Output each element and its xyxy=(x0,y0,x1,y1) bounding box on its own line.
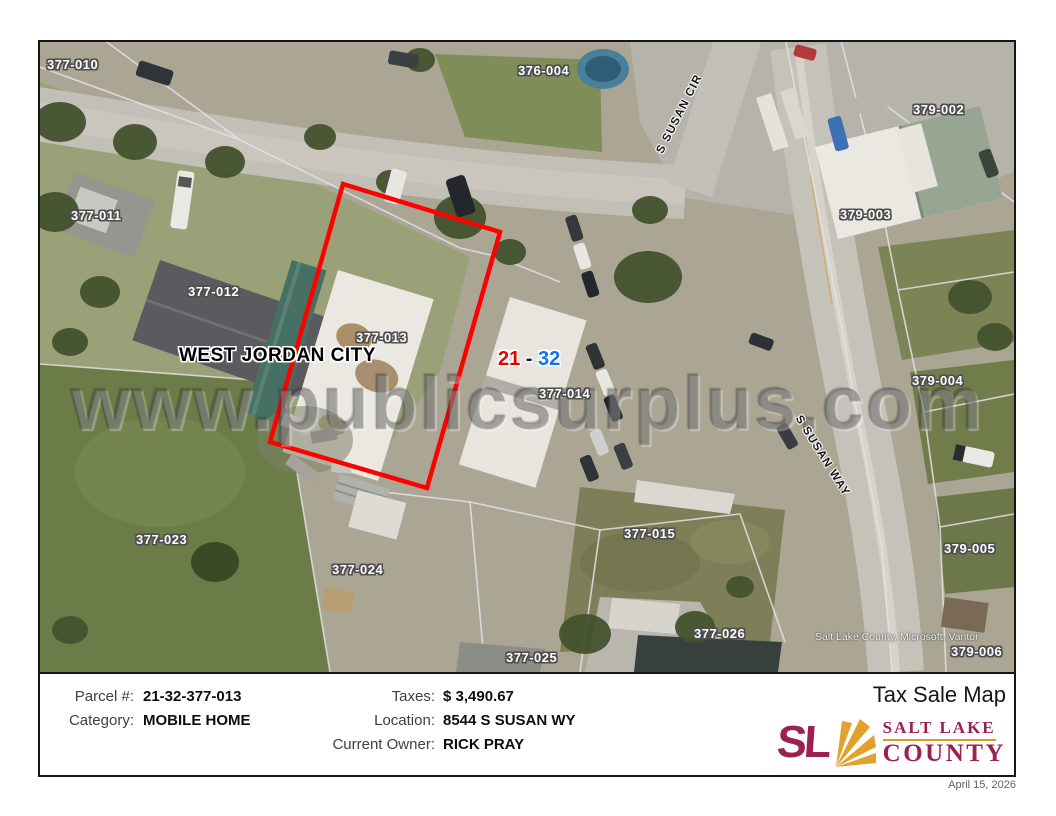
parcel-label-376-004: 376-004 xyxy=(518,63,569,78)
category-value: MOBILE HOME xyxy=(143,712,251,729)
map-frame: www.publicsurplus.com 377-010376-004379-… xyxy=(38,40,1016,777)
county-name: SALT LAKE COUNTY xyxy=(883,718,1006,767)
page-title: Tax Sale Map xyxy=(873,682,1006,708)
range-to: 32 xyxy=(538,348,560,370)
page: www.publicsurplus.com 377-010376-004379-… xyxy=(0,0,1056,816)
parcel-label-377-024: 377-024 xyxy=(332,562,383,577)
parcel-number-label: Parcel #: xyxy=(40,688,134,705)
location-label: Location: xyxy=(288,712,435,729)
parcel-label-379-006: 379-006 xyxy=(951,644,1002,659)
sl-logomark: SL xyxy=(776,722,830,763)
parcel-label-377-026: 377-026 xyxy=(694,626,745,641)
parcel-label-379-003: 379-003 xyxy=(840,207,891,222)
parcel-label-377-014: 377-014 xyxy=(539,386,590,401)
taxes-label: Taxes: xyxy=(288,688,435,705)
aerial-map: www.publicsurplus.com 377-010376-004379-… xyxy=(40,42,1014,674)
parcel-label-379-005: 379-005 xyxy=(944,541,995,556)
sunburst-icon xyxy=(836,719,876,767)
city-label: WEST JORDAN CITY xyxy=(179,345,376,367)
map-date: April 15, 2026 xyxy=(948,779,1016,791)
current-owner-value: RICK PRAY xyxy=(443,736,524,753)
current-owner-label: Current Owner: xyxy=(288,736,435,753)
county-logo: SL SALT LAKE COUNTY xyxy=(777,718,1006,767)
category-label: Category: xyxy=(40,712,134,729)
parcel-label-379-002: 379-002 xyxy=(913,102,964,117)
parcel-label-377-015: 377-015 xyxy=(624,526,675,541)
county-name-line2: COUNTY xyxy=(883,741,1006,767)
watermark: www.publicsurplus.com xyxy=(52,360,1002,447)
details-panel: Parcel #: 21-32-377-013 Category: MOBILE… xyxy=(40,674,1014,775)
range-separator: - xyxy=(520,348,538,370)
parcel-label-377-013: 377-013 xyxy=(356,330,407,345)
map-attribution: Salt Lake County, Microsoft, Vantor xyxy=(815,631,979,643)
parcel-label-377-025: 377-025 xyxy=(506,650,557,665)
parcel-label-377-011: 377-011 xyxy=(71,208,122,223)
county-name-line1: SALT LAKE xyxy=(883,718,996,741)
location-value: 8544 S SUSAN WY xyxy=(443,712,576,729)
taxes-value: $ 3,490.67 xyxy=(443,688,514,705)
parcel-label-377-023: 377-023 xyxy=(136,532,187,547)
parcel-label-379-004: 379-004 xyxy=(912,373,963,388)
range-from: 21 xyxy=(498,348,520,370)
parcel-label-377-010: 377-010 xyxy=(47,57,98,72)
parcel-range-label: 21 - 32 xyxy=(498,348,560,371)
parcel-number-value: 21-32-377-013 xyxy=(143,688,241,705)
parcel-label-377-012: 377-012 xyxy=(188,284,239,299)
